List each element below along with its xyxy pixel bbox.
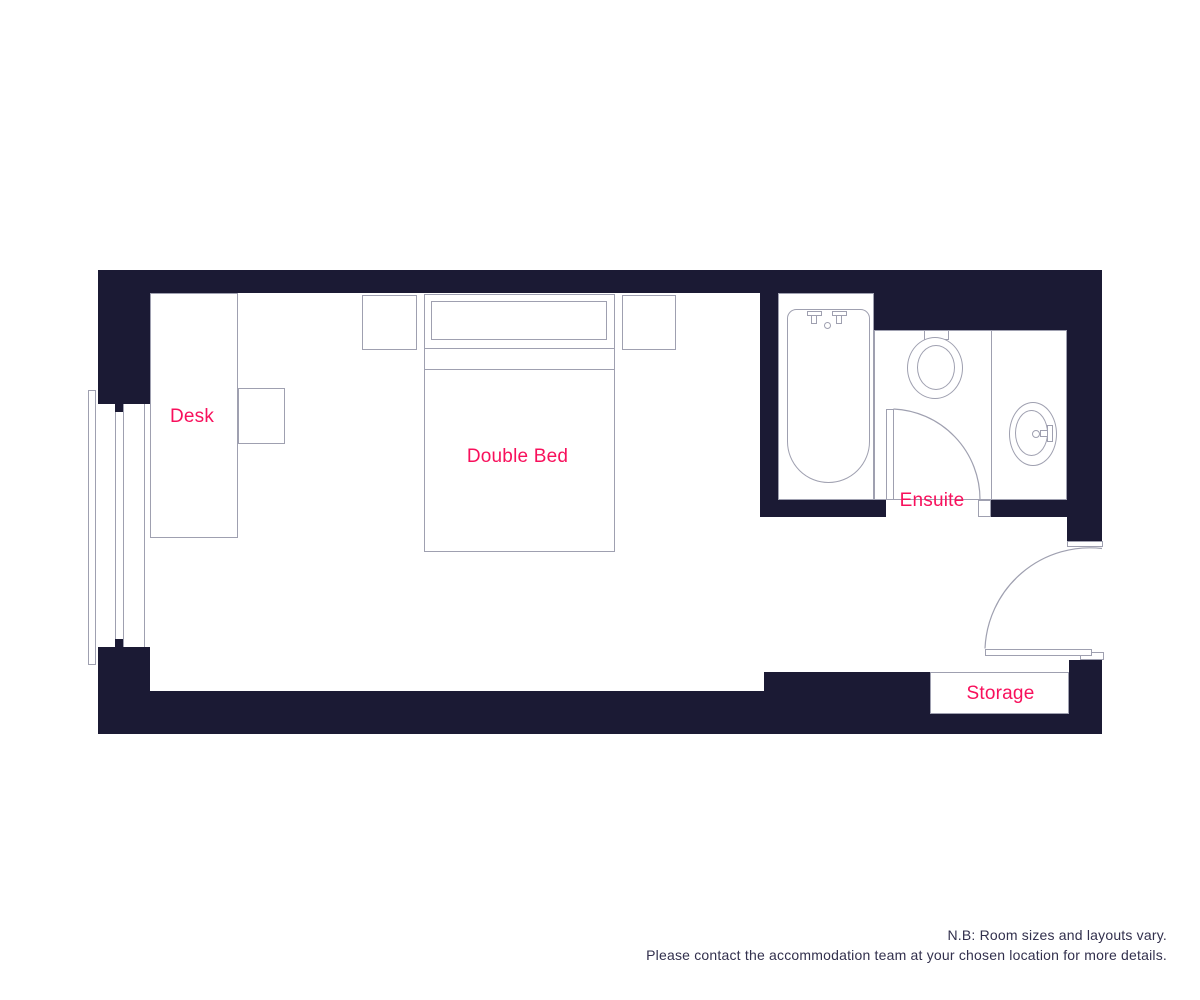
bath-tap-icon [836, 315, 842, 324]
bathtub [787, 309, 870, 484]
toilet-bowl-inner [917, 345, 955, 390]
note-line-1: N.B: Room sizes and layouts vary. [646, 926, 1167, 946]
wall-ensuite-bottom-left [760, 500, 886, 517]
bedside-table-left [362, 295, 417, 350]
window-pane-divider [123, 404, 124, 647]
sink-tap-knob-icon [1032, 430, 1040, 438]
wall-under-storage [930, 714, 1069, 735]
note-text: N.B: Room sizes and layouts vary. Please… [646, 926, 1167, 965]
room-floor-plan: Desk Double Bed Ensuite Storage N.B: Roo… [0, 0, 1200, 1000]
window-opening [98, 404, 150, 647]
ensuite-label: Ensuite [900, 490, 965, 512]
bath-tap-icon [811, 315, 817, 324]
bed-fold-line [425, 369, 614, 370]
wall-bottom-mid [764, 672, 931, 735]
bedside-table-right [622, 295, 677, 350]
sink-tap-icon [1047, 425, 1053, 442]
double-bed [424, 294, 615, 552]
wall-left-upper [98, 270, 150, 404]
window-pane-divider [115, 404, 116, 647]
wall-bottom-right-column [1069, 660, 1103, 734]
window-mullion-tab-bottom [115, 639, 124, 647]
pillow [431, 301, 608, 341]
bath-overflow-icon [824, 322, 831, 329]
entrance-door-leaf [985, 649, 1092, 657]
double-bed-label: Double Bed [467, 446, 568, 468]
desk-chair [238, 388, 286, 444]
window-pane-divider [144, 404, 145, 647]
wall-ensuite-divider [760, 293, 778, 517]
ensuite-door-stop [978, 500, 992, 517]
storage-label: Storage [967, 683, 1035, 705]
wall-right [1067, 270, 1103, 541]
ensuite-partition-line [991, 330, 992, 501]
wall-top [98, 270, 1103, 293]
note-line-2: Please contact the accommodation team at… [646, 946, 1167, 966]
wall-ensuite-bottom-right [991, 500, 1067, 517]
wall-left-lower [98, 647, 150, 691]
desk-label: Desk [170, 406, 214, 428]
window-mullion-tab-top [115, 404, 124, 412]
ensuite-door-leaf [886, 409, 894, 500]
wall-top-thick-section [874, 293, 1067, 330]
entrance-door-frame-top [1067, 541, 1104, 547]
wall-bottom-left [98, 691, 764, 735]
entrance-door-swing-arc [985, 548, 1102, 649]
window-outer-frame [88, 390, 96, 665]
bed-fold-line [425, 348, 614, 349]
